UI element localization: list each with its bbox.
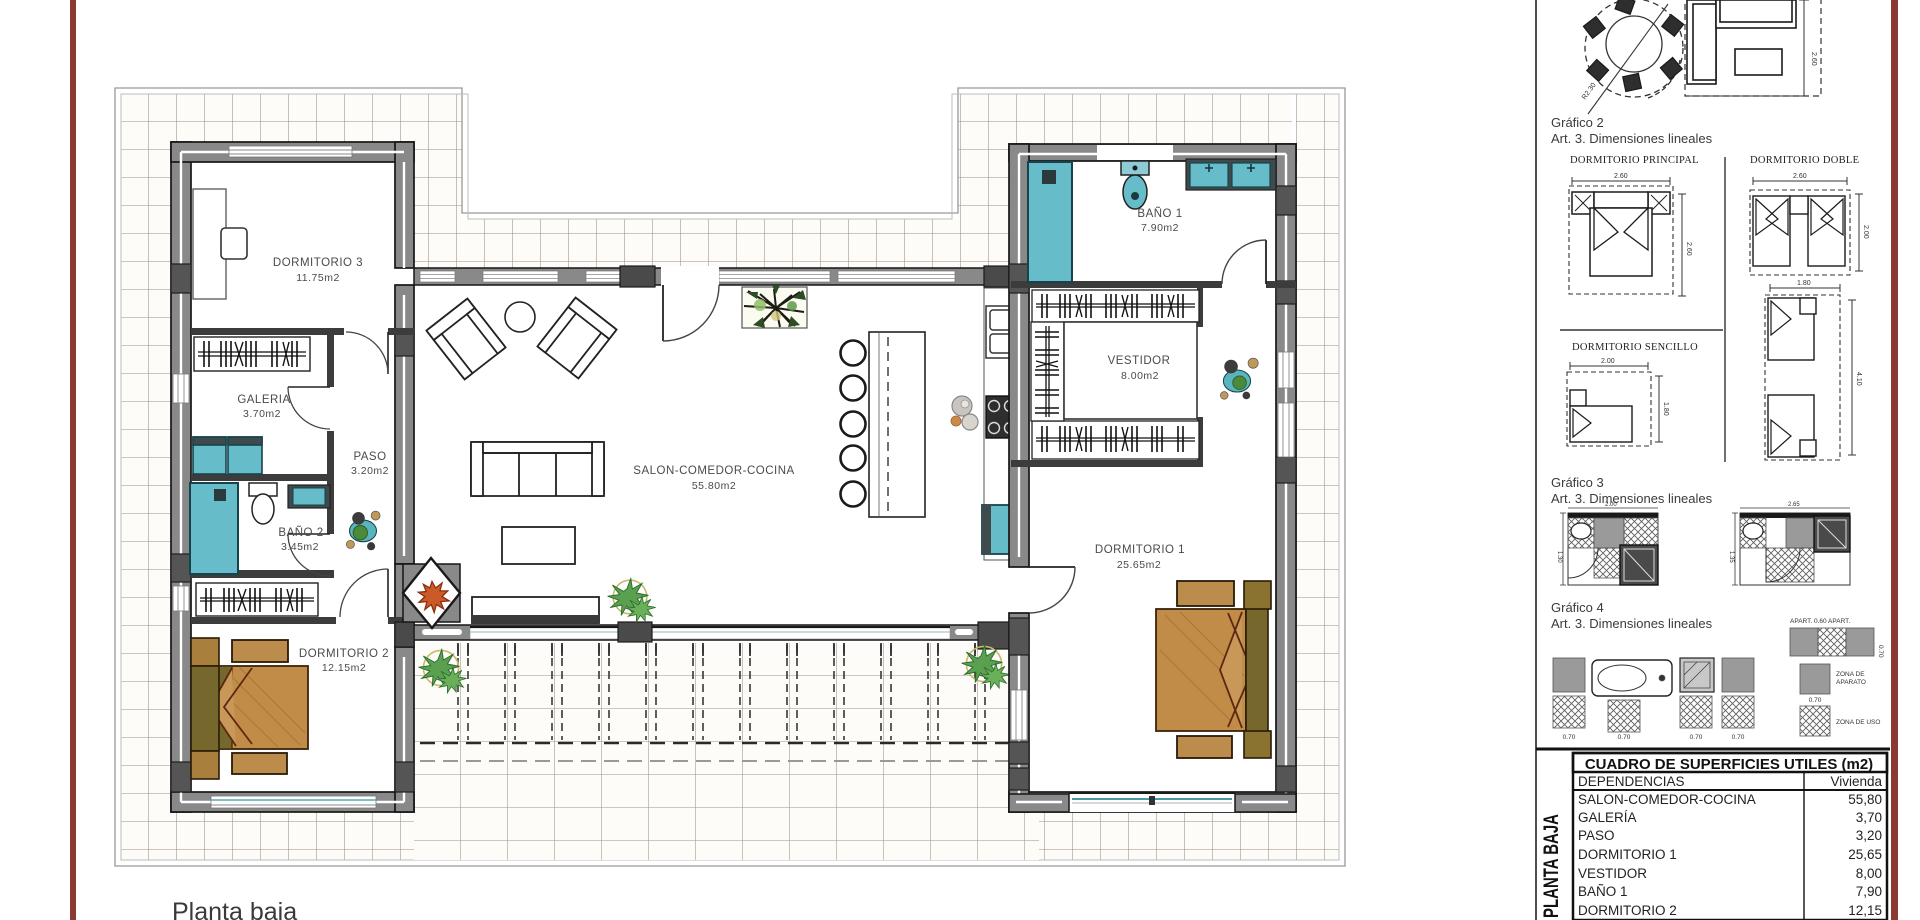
svg-text:2.60: 2.60 — [1614, 173, 1628, 180]
svg-text:12,15: 12,15 — [1848, 903, 1882, 918]
svg-text:Vivienda: Vivienda — [1830, 774, 1882, 789]
svg-text:Planta baja: Planta baja — [172, 898, 297, 920]
svg-text:8,00: 8,00 — [1856, 866, 1882, 881]
svg-text:Gráfico 2: Gráfico 2 — [1551, 115, 1604, 130]
svg-text:BAÑO 1: BAÑO 1 — [1137, 207, 1182, 220]
svg-text:11.75m2: 11.75m2 — [296, 272, 340, 284]
svg-text:Art. 3. Dimensiones lineales: Art. 3. Dimensiones lineales — [1551, 616, 1713, 631]
svg-text:BAÑO 2: BAÑO 2 — [278, 526, 323, 539]
svg-text:3.70m2: 3.70m2 — [243, 408, 281, 420]
svg-text:DORMITORIO PRINCIPAL: DORMITORIO PRINCIPAL — [1570, 155, 1699, 166]
svg-text:2.60: 2.60 — [1685, 242, 1692, 256]
svg-text:GALERIA: GALERIA — [237, 394, 290, 406]
svg-text:PLANTA BAJA: PLANTA BAJA — [1540, 814, 1563, 918]
svg-text:CUADRO DE SUPERFICIES UTILES (: CUADRO DE SUPERFICIES UTILES (m2) — [1585, 756, 1873, 773]
svg-text:PASO: PASO — [353, 451, 386, 463]
svg-text:2.60: 2.60 — [1810, 52, 1817, 66]
svg-text:ZONA DE: ZONA DE — [1836, 671, 1865, 678]
svg-text:Art. 3. Dimensiones lineales: Art. 3. Dimensiones lineales — [1551, 131, 1713, 146]
svg-text:DORMITORIO 2: DORMITORIO 2 — [1578, 903, 1677, 918]
svg-text:1.80: 1.80 — [1797, 280, 1811, 287]
svg-text:1.30: 1.30 — [1556, 551, 1562, 563]
svg-text:APARATO: APARATO — [1836, 679, 1866, 686]
svg-text:SALON-COMEDOR-COCINA: SALON-COMEDOR-COCINA — [633, 465, 794, 477]
svg-text:25,65: 25,65 — [1848, 847, 1882, 862]
svg-text:3.20m2: 3.20m2 — [351, 465, 389, 477]
svg-text:0.70: 0.70 — [1809, 697, 1822, 704]
svg-text:3,20: 3,20 — [1856, 828, 1882, 843]
svg-text:25.65m2: 25.65m2 — [1117, 559, 1161, 571]
svg-text:SALON-COMEDOR-COCINA: SALON-COMEDOR-COCINA — [1578, 792, 1756, 807]
svg-text:8.00m2: 8.00m2 — [1121, 370, 1159, 382]
svg-text:0.70: 0.70 — [1618, 734, 1631, 741]
svg-text:55,80: 55,80 — [1848, 792, 1882, 807]
svg-text:2.00: 2.00 — [1605, 502, 1617, 508]
svg-text:DORMITORIO 3: DORMITORIO 3 — [273, 257, 363, 269]
svg-text:0.70: 0.70 — [1690, 734, 1703, 741]
svg-text:DORMITORIO 2: DORMITORIO 2 — [299, 648, 389, 660]
svg-text:BAÑO 1: BAÑO 1 — [1578, 884, 1628, 899]
svg-text:2.00: 2.00 — [1601, 358, 1615, 365]
svg-text:3,70: 3,70 — [1856, 810, 1882, 825]
svg-text:1.35: 1.35 — [1728, 551, 1734, 563]
svg-text:2.60: 2.60 — [1793, 173, 1807, 180]
svg-text:7.90m2: 7.90m2 — [1141, 222, 1179, 234]
svg-text:0.70: 0.70 — [1877, 645, 1884, 658]
svg-text:4.10: 4.10 — [1855, 372, 1862, 386]
svg-text:3.45m2: 3.45m2 — [281, 541, 319, 553]
svg-text:DORMITORIO SENCILLO: DORMITORIO SENCILLO — [1572, 342, 1698, 353]
svg-text:DORMITORIO 1: DORMITORIO 1 — [1578, 847, 1677, 862]
svg-text:0.70: 0.70 — [1732, 734, 1745, 741]
svg-text:VESTIDOR: VESTIDOR — [1578, 866, 1647, 881]
svg-text:DORMITORIO 1: DORMITORIO 1 — [1095, 544, 1185, 556]
svg-text:PASO: PASO — [1578, 828, 1615, 843]
svg-text:APART. 0.60 APART.: APART. 0.60 APART. — [1790, 618, 1850, 625]
svg-text:2.65: 2.65 — [1788, 502, 1800, 508]
svg-text:ZONA DE USO: ZONA DE USO — [1836, 719, 1880, 726]
svg-text:DEPENDENCIAS: DEPENDENCIAS — [1578, 774, 1685, 789]
svg-text:GALERÍA: GALERÍA — [1578, 810, 1637, 825]
svg-text:2.00: 2.00 — [1862, 225, 1869, 239]
svg-text:Gráfico 4: Gráfico 4 — [1551, 600, 1604, 615]
svg-text:1.80: 1.80 — [1662, 402, 1669, 416]
svg-text:0.70: 0.70 — [1563, 734, 1576, 741]
svg-text:55.80m2: 55.80m2 — [692, 480, 736, 492]
svg-text:Gráfico 3: Gráfico 3 — [1551, 475, 1604, 490]
svg-text:7,90: 7,90 — [1856, 884, 1882, 899]
svg-text:VESTIDOR: VESTIDOR — [1108, 355, 1171, 367]
svg-text:DORMITORIO DOBLE: DORMITORIO DOBLE — [1750, 155, 1859, 166]
svg-text:Art. 3. Dimensiones lineales: Art. 3. Dimensiones lineales — [1551, 491, 1713, 506]
svg-text:12.15m2: 12.15m2 — [322, 662, 366, 674]
